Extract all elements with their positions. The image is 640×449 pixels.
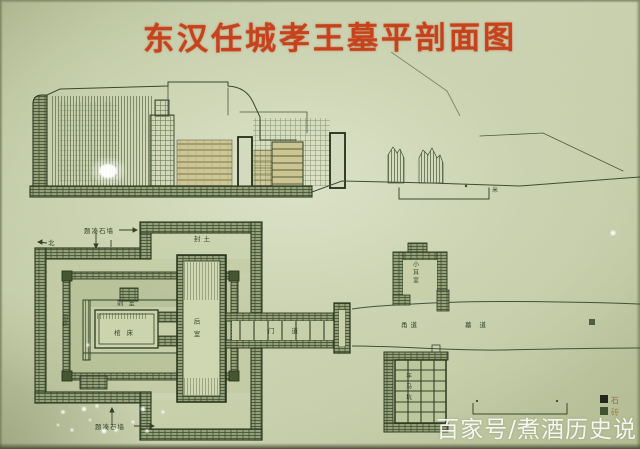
label-outer-wall-top: 题凑石墙: [84, 226, 114, 235]
section-view: 米: [30, 82, 640, 199]
section-scale-unit: 米: [492, 186, 498, 194]
label-passage-inner: 甬道: [401, 320, 420, 329]
section-tower: [150, 100, 174, 186]
label-north: 北: [48, 239, 55, 247]
section-stone-layers-left: [177, 140, 232, 186]
label-rear-chamber: 后室: [192, 317, 200, 343]
label-door-passage: 门道: [268, 326, 315, 335]
photo-board: 米: [0, 0, 640, 449]
section-left-wall: [33, 95, 47, 190]
tomb-drawing: 米: [0, 0, 640, 449]
plan-passage-lines: [352, 302, 640, 351]
label-front-chamber: 前室: [117, 298, 140, 307]
label-mound: 封土: [194, 234, 213, 243]
label-ear-chamber: 小耳室: [412, 260, 419, 285]
watermark: 百家号/煮酒历史说: [436, 410, 637, 444]
section-ramp-line: [480, 133, 623, 171]
section-stone-clusters: [388, 147, 443, 183]
plan-ear-chamber: [393, 243, 449, 311]
section-scale-bar: 米: [399, 185, 498, 199]
section-shaft-left: [238, 137, 252, 187]
label-passage: 墓道: [465, 320, 494, 329]
label-pit: 车马坑: [405, 371, 412, 405]
label-coffin-platform: 棺床: [114, 328, 139, 337]
section-floor-band: [30, 186, 312, 197]
section-ground-line: [312, 177, 640, 192]
label-gallery: 回廊: [61, 314, 68, 327]
section-shaft-right: [330, 133, 345, 188]
legend-swatch-stone: [600, 395, 608, 403]
passage-far-mark: [589, 319, 595, 325]
plan-rear-chamber: [177, 255, 226, 402]
label-outer-wall-bottom: 题凑石墙: [95, 422, 125, 431]
photo-scratch-line: [391, 52, 460, 116]
legend-label-stone: 石: [611, 396, 619, 405]
photo-edge-bottom: [0, 443, 640, 449]
diagram-title: 东汉任城孝王墓平剖面图: [120, 12, 540, 59]
